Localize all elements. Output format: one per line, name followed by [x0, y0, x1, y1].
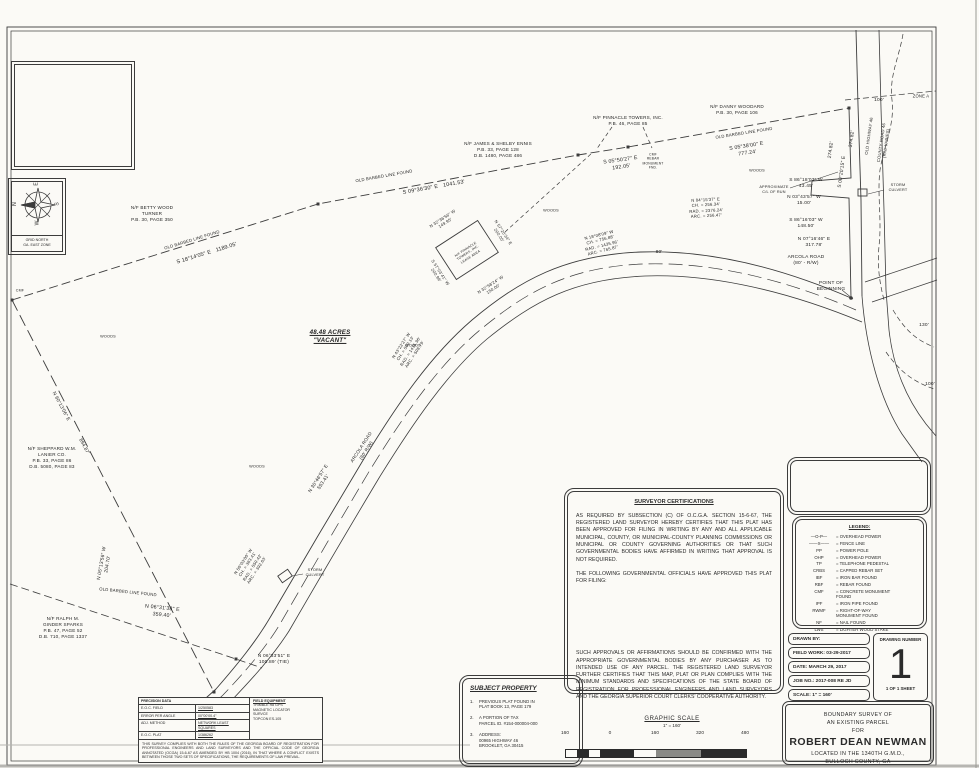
- approvals-blank-box: [790, 460, 928, 512]
- legend-row: PP= POWER POLE: [802, 548, 917, 553]
- legend-row: IPF= IRON PIPE FOUND: [802, 601, 917, 606]
- compass-east-letter: E: [34, 182, 40, 185]
- compass-south-letter: S: [55, 202, 61, 205]
- map-label: S 86°16'03" W 148.50': [789, 218, 823, 230]
- legend-symbol: RBF: [802, 582, 836, 587]
- map-label: N/F BETTY WOOD TURNER P.B. 30, PAGE 350: [131, 205, 173, 223]
- certification-paragraph-2: THE FOLLOWING GOVERNMENTAL OFFICIALS HAV…: [576, 571, 772, 586]
- map-label: N/F SHEPPARD W.M. LANIER CO. P.B. 33, PA…: [28, 446, 77, 470]
- map-label: CMF: [16, 289, 24, 294]
- legend-symbol: NF: [802, 620, 836, 625]
- field-work-field: FIELD WORK: 03-29-2017: [788, 647, 870, 659]
- map-label: STORM CULVERT: [306, 568, 325, 578]
- precision-value: NETWORK LEAST SQUARES: [196, 720, 249, 731]
- scale-field: SCALE: 1" = 160': [788, 689, 870, 701]
- scale-tick: 320: [696, 731, 704, 736]
- legend-row: NF= NAIL FOUND: [802, 620, 917, 625]
- map-label: N 03°43'57" W 15.00': [787, 195, 821, 207]
- certification-paragraph-1: AS REQUIRED BY SUBSECTION (C) OF O.C.G.A…: [576, 513, 772, 564]
- compass-west-letter: W: [34, 221, 40, 226]
- precision-value: 00°00'00.4": [196, 713, 218, 719]
- map-label: 80': [656, 250, 663, 256]
- legend-symbol: OHP: [802, 555, 836, 560]
- survey-title-line: LOCATED IN THE 1340TH G.M.D.,: [786, 750, 930, 758]
- survey-title-box: BOUNDARY SURVEY OFAN EXISTING PARCELFORR…: [785, 704, 931, 762]
- map-label: N/F RALPH M. GINDER SPARKS P.B. 47, PAGE…: [39, 616, 87, 640]
- item-text: ADDRESS: 00965 HIGHWAY 46 BROOKLET, GA 3…: [479, 732, 523, 749]
- legend-symbol: ——X——: [802, 541, 836, 546]
- map-label: N/F DANNY WOODARD P.B. 30, PAGE 106: [710, 104, 764, 116]
- legend-symbol: PP: [802, 548, 836, 553]
- date-field: DATE: MARCH 29, 2017: [788, 661, 870, 673]
- compass-box: E N S W GRID NORTH GA. EAST ZONE: [11, 181, 63, 252]
- legend-row: RWMF= RIGHT-OF-WAY MONUMENT FOUND: [802, 608, 917, 619]
- legend-row: TP= TELEPHONE PEDESTAL: [802, 561, 917, 566]
- precision-data-box: PRECISION DATA E.O.C. FIELD1/250583ERROR…: [138, 697, 323, 763]
- sheet-count: 1 OF 1 SHEET: [876, 686, 925, 691]
- legend-symbol: CMF: [802, 589, 836, 600]
- job-number-field: JOB NO.: 2017-008 RE JD: [788, 675, 870, 687]
- graphic-scale-title: GRAPHIC SCALE: [556, 716, 788, 722]
- map-label: WOODS: [749, 169, 765, 174]
- precision-key: ERROR PER ANGLE: [139, 713, 196, 719]
- precision-row: E.O.C. PLAT1/386262: [139, 732, 249, 738]
- survey-title-line: FOR: [786, 727, 930, 735]
- compass-north-letter: N: [12, 202, 18, 206]
- survey-title-line: AN EXISTING PARCEL: [786, 719, 930, 727]
- field-equipment-box: FIELD EQUIPMENT TRIMBLE R8 GPSMAGNETIC L…: [250, 698, 322, 739]
- legend-label: = IRON BAR FOUND: [836, 575, 877, 580]
- map-label: CMF REBAR MONUMENT FND.: [642, 152, 663, 169]
- map-label: 48.48 ACRES "VACANT": [310, 329, 351, 345]
- map-label: ZONE A: [913, 93, 930, 98]
- legend-label: = POWER POLE: [836, 548, 869, 553]
- scale-tick: 160: [651, 731, 659, 736]
- graphic-scale: GRAPHIC SCALE 1" = 160' 160 0 160 320 48…: [556, 716, 788, 762]
- survey-title-line: BOUNDARY SURVEY OF: [786, 711, 930, 719]
- legend-label: = CONCRETE MONUMENT FOUND: [836, 589, 890, 600]
- legend-symbol: IPF: [802, 601, 836, 606]
- map-label: N 04°15'37" E CH. = 256.34' RAD. = 2376.…: [689, 196, 724, 220]
- subject-property-item: 1.PREVIOUS PLAT FOUND IN PLAT BOOK 13, P…: [470, 699, 572, 711]
- map-label: WOODS: [100, 335, 116, 340]
- legend-row: OHP= OVERHEAD POWER: [802, 555, 917, 560]
- drawn-by-field: DRAWN BY:: [788, 633, 870, 645]
- map-label: 100': [925, 382, 935, 388]
- legend-title: LEGEND:: [802, 525, 917, 531]
- drawing-number-value: 1: [876, 642, 925, 686]
- legend-label: = CAPPED REBAR SET: [836, 568, 883, 573]
- survey-title-line: BULLOCH COUNTY, GA: [786, 758, 930, 766]
- precision-row: ADJ. METHODNETWORK LEAST SQUARES: [139, 720, 249, 732]
- grid-north-caption: GRID NORTH GA. EAST ZONE: [12, 235, 62, 248]
- legend-label: = LIGHTER WOOD STAKE: [836, 627, 888, 632]
- drawing-number-box: DRAWING NUMBER 1 1 OF 1 SHEET: [873, 633, 928, 701]
- legend-row: CMF= CONCRETE MONUMENT FOUND: [802, 589, 917, 600]
- legend-row: CRBS= CAPPED REBAR SET: [802, 568, 917, 573]
- subject-property-title: SUBJECT PROPERTY: [470, 685, 572, 694]
- legend-symbol: —O-P—: [802, 534, 836, 539]
- surveyor-certifications-box: SURVEYOR CERTIFICATIONS AS REQUIRED BY S…: [567, 491, 781, 691]
- plat-sheet: N/F BETTY WOOD TURNER P.B. 30, PAGE 350N…: [0, 0, 979, 768]
- map-label: S 86°18'03" W 43.45': [789, 178, 823, 190]
- item-text: PREVIOUS PLAT FOUND IN PLAT BOOK 13, PAG…: [479, 699, 535, 711]
- legend-row: —O-P—= OVERHEAD POWER: [802, 534, 917, 539]
- scale-tick: 480: [741, 731, 749, 736]
- signature-space: [576, 592, 772, 650]
- item-text: A PORTION OF TAX PARCEL ID. #154-000004-…: [479, 715, 538, 727]
- legend-symbol: IBF: [802, 575, 836, 580]
- legend-box: LEGEND: —O-P—= OVERHEAD POWER——X——= FENC…: [795, 519, 924, 626]
- precision-row: ERROR PER ANGLE00°00'00.4": [139, 713, 249, 720]
- legend-row: RBF= REBAR FOUND: [802, 582, 917, 587]
- legend-symbol: CRBS: [802, 568, 836, 573]
- precision-table: PRECISION DATA E.O.C. FIELD1/250583ERROR…: [139, 698, 250, 739]
- graphic-scale-ratio: 1" = 160': [556, 723, 788, 728]
- legend-symbol: LWS: [802, 627, 836, 632]
- legend-label: = OVERHEAD POWER: [836, 534, 881, 539]
- map-label: N/F PINNACLE TOWERS, INC. P.B. 46, PAGE …: [593, 115, 663, 127]
- certification-paragraph-3: SUCH APPROVALS OR AFFIRMATIONS SHOULD BE…: [576, 650, 772, 701]
- legend-label: = NAIL FOUND: [836, 620, 866, 625]
- map-label: APPROXIMATE C/L OF RUN: [759, 185, 788, 195]
- legend-symbol: RWMF: [802, 608, 836, 619]
- map-label: N 06°33'51" E 100.89' (TIE): [258, 654, 290, 666]
- item-number: 3.: [470, 732, 479, 749]
- map-label: WOODS: [249, 465, 265, 470]
- legend-label: = OVERHEAD POWER: [836, 555, 881, 560]
- precision-key: ADJ. METHOD: [139, 720, 196, 731]
- legend-rows: —O-P—= OVERHEAD POWER——X——= FENCE LINEPP…: [802, 534, 917, 632]
- scale-tick: 0: [609, 731, 612, 736]
- legend-row: IBF= IRON BAR FOUND: [802, 575, 917, 580]
- scale-bar-graphic: [565, 749, 747, 758]
- precision-value: 1/386262: [196, 732, 215, 738]
- map-label: STORM CULVERT: [889, 183, 908, 193]
- scale-tick: 160: [561, 731, 569, 736]
- equipment-item: TOPCON ES-105: [253, 717, 319, 721]
- map-label: WOODS: [543, 209, 559, 214]
- item-number: 2.: [470, 715, 479, 727]
- precision-key: E.O.C. FIELD: [139, 705, 196, 711]
- legend-label: = REBAR FOUND: [836, 582, 871, 587]
- precision-value: 1/250583: [196, 705, 215, 711]
- map-label: N 07°16'46" E 317.78': [798, 237, 830, 249]
- map-label: 130': [919, 323, 929, 329]
- precision-row: E.O.C. FIELD1/250583: [139, 705, 249, 712]
- legend-row: LWS= LIGHTER WOOD STAKE: [802, 627, 917, 632]
- item-number: 1.: [470, 699, 479, 711]
- compliance-note: THIS SURVEY COMPLIES WITH BOTH THE RULES…: [139, 740, 322, 762]
- survey-title-line: ROBERT DEAN NEWMAN: [786, 735, 930, 750]
- legend-label: = IRON PIPE FOUND: [836, 601, 878, 606]
- legend-label: = RIGHT-OF-WAY MONUMENT FOUND: [836, 608, 878, 619]
- precision-title: PRECISION DATA: [139, 698, 249, 705]
- legend-label: = FENCE LINE: [836, 541, 865, 546]
- map-label: POINT OF BEGINNING: [817, 281, 846, 293]
- certifications-title: SURVEYOR CERTIFICATIONS: [576, 499, 772, 507]
- legend-row: ——X——= FENCE LINE: [802, 541, 917, 546]
- recording-stamp-box: [14, 64, 132, 167]
- graphic-scale-ticks: 160 0 160 320 480: [556, 731, 788, 739]
- precision-key: E.O.C. PLAT: [139, 732, 196, 738]
- legend-label: = TELEPHONE PEDESTAL: [836, 561, 889, 566]
- map-label: 100': [874, 98, 884, 104]
- legend-symbol: TP: [802, 561, 836, 566]
- map-label: N/F JAMES & SHELBY ENNIS P.B. 33, PAGE 1…: [464, 141, 532, 159]
- map-label: ARCOLA ROAD (80' - R/W): [788, 255, 825, 267]
